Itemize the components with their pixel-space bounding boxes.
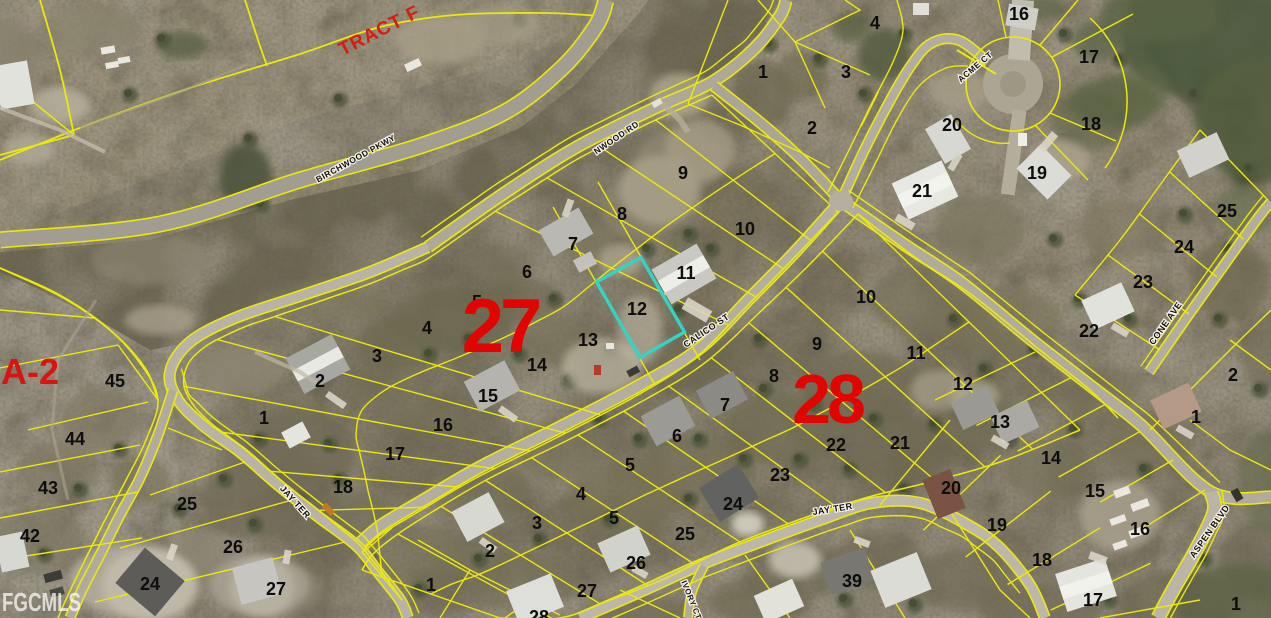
svg-text:13: 13 [578, 330, 598, 350]
svg-text:24: 24 [1174, 237, 1194, 257]
svg-text:42: 42 [20, 526, 40, 546]
svg-text:18: 18 [333, 477, 353, 497]
svg-text:43: 43 [38, 478, 58, 498]
svg-text:44: 44 [65, 429, 85, 449]
svg-text:25: 25 [1217, 201, 1237, 221]
svg-text:23: 23 [1133, 272, 1153, 292]
svg-text:3: 3 [372, 346, 382, 366]
svg-text:17: 17 [385, 444, 405, 464]
svg-text:7: 7 [568, 234, 578, 254]
svg-text:27: 27 [462, 284, 539, 369]
svg-text:21: 21 [912, 181, 932, 201]
svg-text:23: 23 [770, 465, 790, 485]
svg-text:21: 21 [890, 433, 910, 453]
svg-text:A-2: A-2 [1, 351, 59, 392]
svg-text:15: 15 [1085, 481, 1105, 501]
svg-text:16: 16 [433, 415, 453, 435]
svg-text:17: 17 [1079, 47, 1099, 67]
svg-text:25: 25 [675, 524, 695, 544]
svg-text:26: 26 [626, 553, 646, 573]
svg-text:18: 18 [1081, 114, 1101, 134]
svg-text:17: 17 [1083, 590, 1103, 610]
svg-text:2: 2 [807, 118, 817, 138]
svg-text:1: 1 [1191, 407, 1201, 427]
svg-text:25: 25 [177, 494, 197, 514]
svg-text:10: 10 [856, 287, 876, 307]
svg-text:16: 16 [1130, 519, 1150, 539]
svg-text:39: 39 [842, 571, 862, 591]
svg-text:1: 1 [1231, 594, 1241, 614]
svg-text:24: 24 [140, 574, 160, 594]
svg-text:27: 27 [266, 579, 286, 599]
svg-text:19: 19 [1027, 163, 1047, 183]
svg-text:11: 11 [676, 263, 695, 283]
svg-text:4: 4 [422, 318, 432, 338]
svg-text:2: 2 [485, 541, 495, 561]
svg-text:28: 28 [792, 360, 864, 438]
svg-text:24: 24 [723, 494, 743, 514]
svg-text:2: 2 [315, 371, 325, 391]
svg-text:22: 22 [826, 435, 846, 455]
svg-text:45: 45 [105, 371, 125, 391]
svg-text:6: 6 [672, 426, 682, 446]
svg-text:12: 12 [953, 374, 973, 394]
svg-text:15: 15 [478, 386, 498, 406]
svg-text:FGCMLS: FGCMLS [2, 587, 81, 617]
svg-text:13: 13 [990, 412, 1010, 432]
svg-text:16: 16 [1009, 4, 1029, 24]
svg-text:22: 22 [1079, 321, 1099, 341]
svg-text:26: 26 [223, 537, 243, 557]
svg-text:18: 18 [1032, 550, 1052, 570]
svg-text:19: 19 [987, 515, 1007, 535]
svg-text:7: 7 [720, 395, 730, 415]
svg-text:20: 20 [942, 115, 962, 135]
svg-text:9: 9 [812, 334, 822, 354]
svg-text:1: 1 [758, 62, 768, 82]
svg-text:4: 4 [576, 484, 586, 504]
svg-text:5: 5 [609, 508, 619, 528]
svg-text:3: 3 [841, 62, 851, 82]
svg-text:6: 6 [522, 262, 532, 282]
svg-text:27: 27 [577, 581, 597, 601]
svg-text:8: 8 [617, 204, 627, 224]
svg-text:5: 5 [625, 455, 635, 475]
svg-text:8: 8 [769, 366, 779, 386]
svg-text:10: 10 [735, 219, 755, 239]
svg-text:2: 2 [1228, 365, 1238, 385]
svg-text:11: 11 [906, 343, 925, 363]
svg-text:1: 1 [426, 575, 436, 595]
svg-text:3: 3 [532, 513, 542, 533]
svg-text:12: 12 [627, 299, 647, 319]
svg-text:20: 20 [941, 478, 961, 498]
svg-text:1: 1 [259, 408, 269, 428]
svg-text:9: 9 [678, 163, 688, 183]
svg-text:14: 14 [1041, 448, 1061, 468]
svg-text:4: 4 [870, 13, 880, 33]
svg-text:28: 28 [529, 607, 549, 618]
